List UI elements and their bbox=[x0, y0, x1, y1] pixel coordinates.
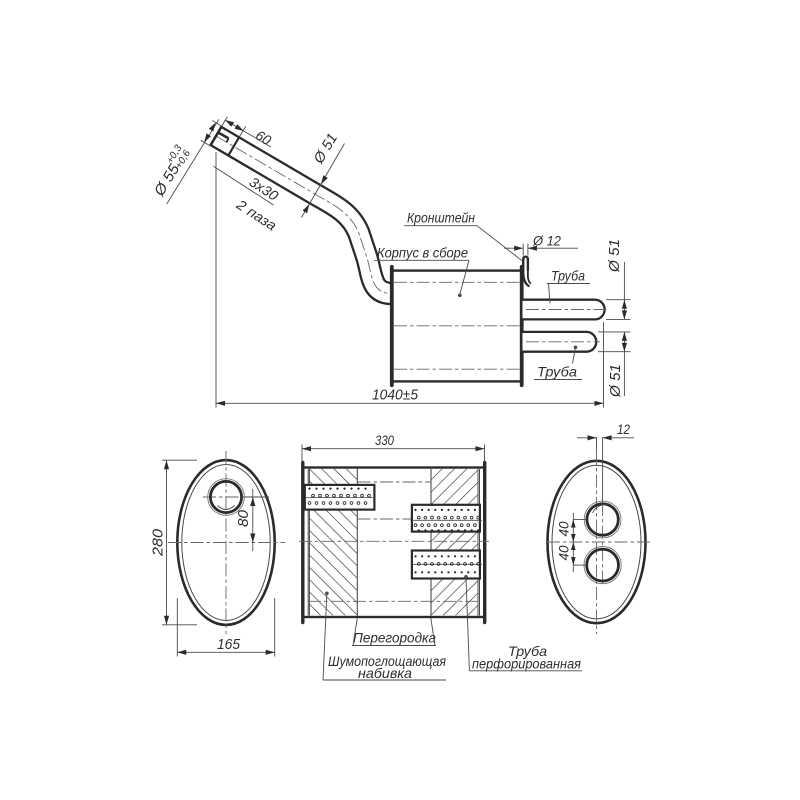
svg-text:1040±5: 1040±5 bbox=[372, 388, 419, 404]
svg-text:40: 40 bbox=[556, 521, 572, 536]
svg-text:330: 330 bbox=[375, 432, 394, 448]
svg-text:перфорированная: перфорированная bbox=[472, 656, 581, 672]
svg-text:Корпус в сборе: Корпус в сборе bbox=[377, 245, 468, 261]
svg-text:280: 280 bbox=[151, 529, 167, 557]
svg-text:набивка: набивка bbox=[358, 666, 412, 681]
svg-text:Ø 12: Ø 12 bbox=[532, 233, 561, 249]
svg-text:165: 165 bbox=[217, 637, 241, 653]
svg-text:12: 12 bbox=[617, 421, 630, 437]
svg-text:80: 80 bbox=[236, 510, 252, 527]
svg-text:40: 40 bbox=[556, 545, 572, 560]
svg-text:Труба: Труба bbox=[537, 364, 577, 380]
svg-text:Кронштейн: Кронштейн bbox=[407, 210, 475, 226]
svg-text:Ø 51: Ø 51 bbox=[608, 364, 624, 398]
svg-text:Труба: Труба bbox=[551, 268, 585, 284]
svg-text:Ø 51: Ø 51 bbox=[607, 239, 623, 273]
svg-text:Перегородка: Перегородка bbox=[353, 630, 436, 646]
